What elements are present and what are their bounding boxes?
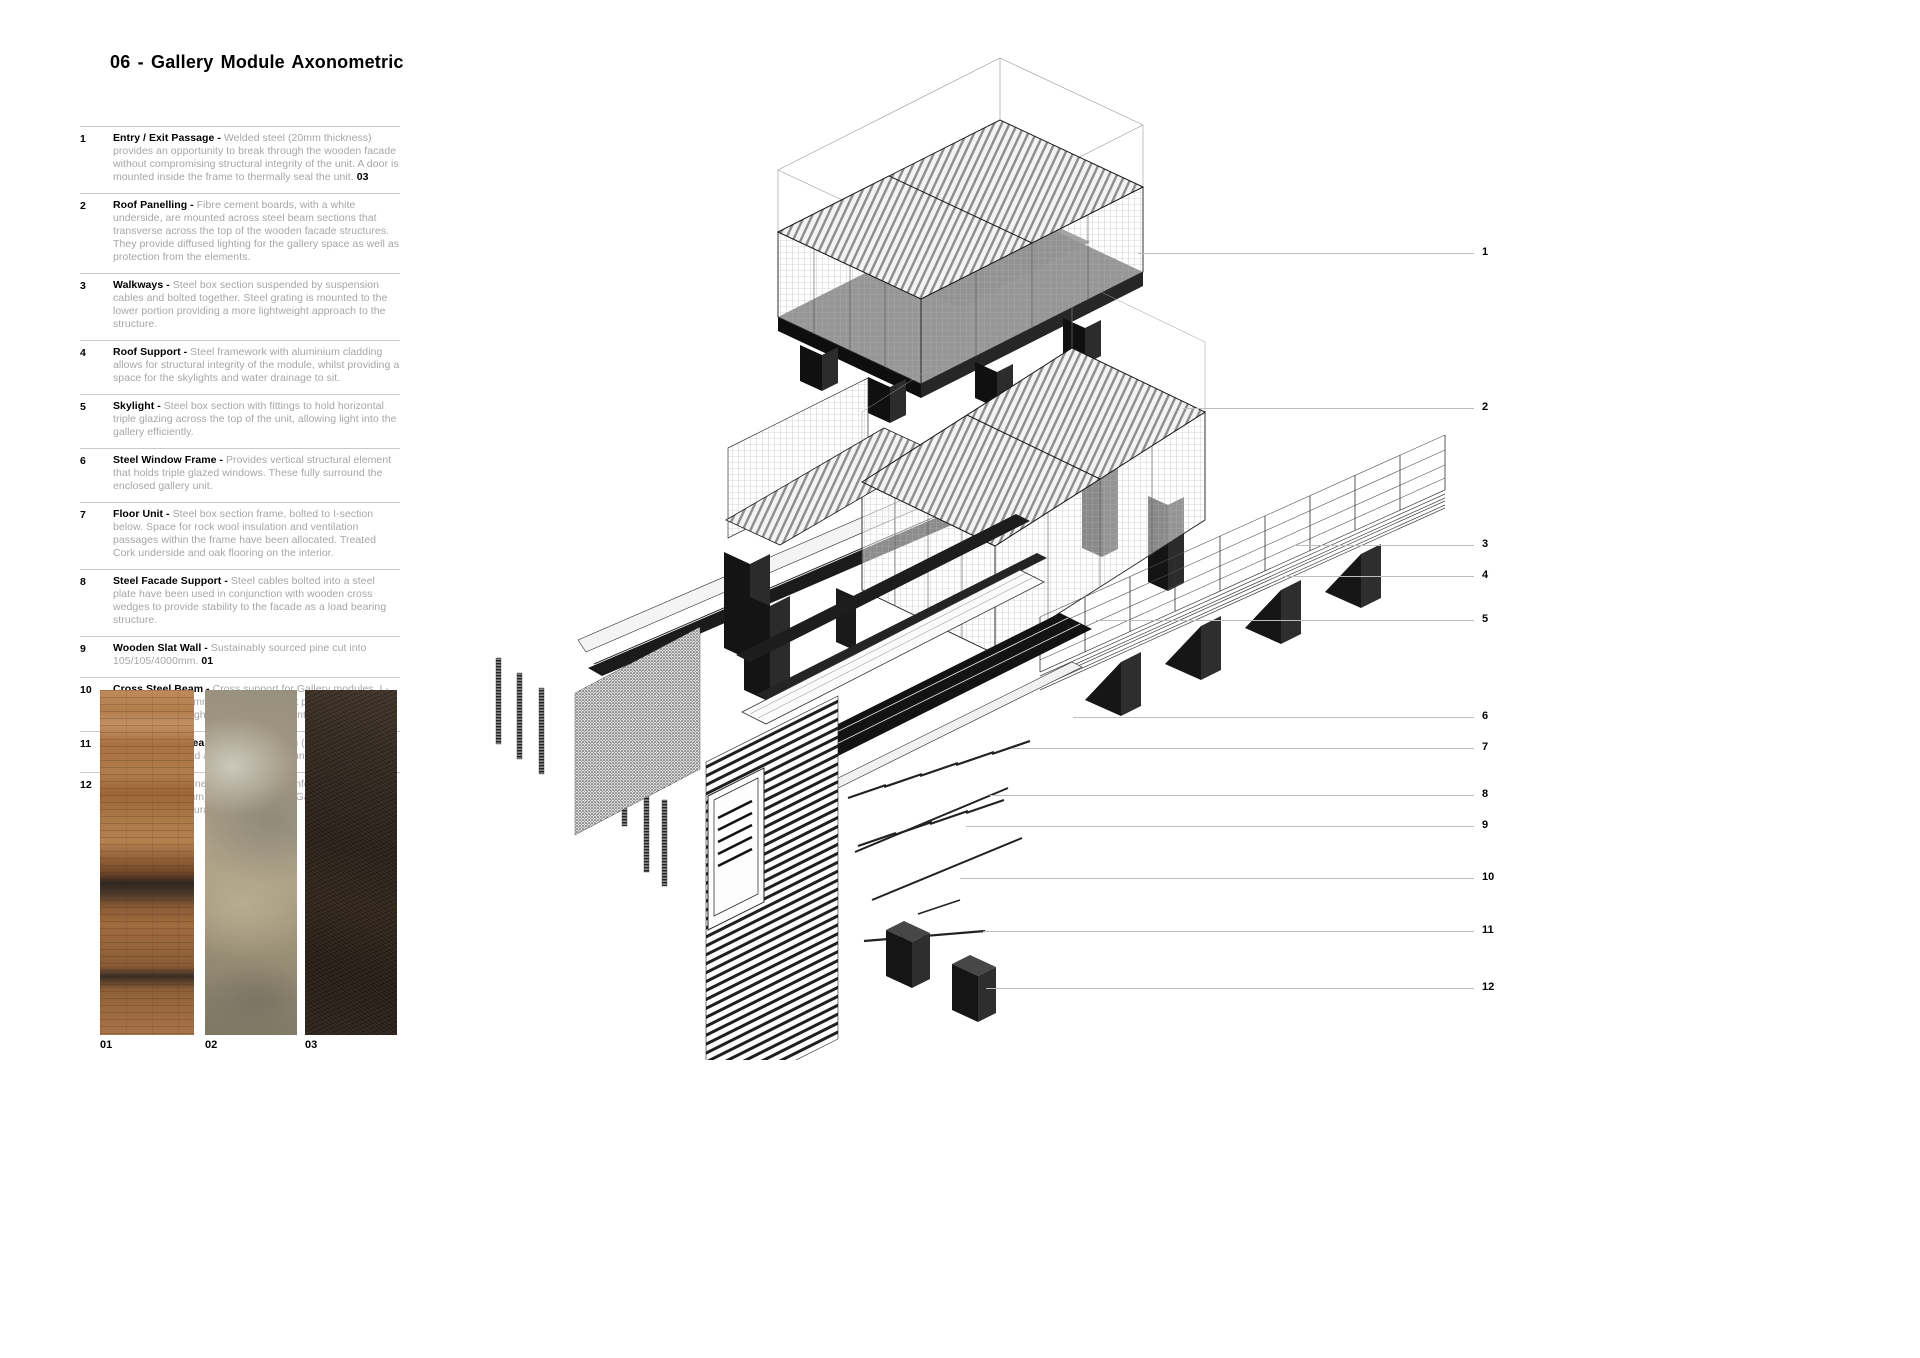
legend-text: Floor Unit - Steel box section frame, bo… — [113, 508, 400, 560]
legend-text: Roof Panelling - Fibre cement boards, wi… — [113, 199, 400, 264]
legend-ref: 01 — [201, 655, 213, 667]
callout-number: 1 — [1482, 246, 1488, 258]
legend-title: Wooden Slat Wall - — [113, 642, 211, 654]
swatch-label-03: 03 — [305, 1039, 317, 1051]
axonometric-drawing — [450, 40, 1500, 1060]
leader-line — [986, 988, 1474, 989]
legend-text: Steel Facade Support - Steel cables bolt… — [113, 575, 400, 627]
legend-text: Steel Window Frame - Provides vertical s… — [113, 454, 400, 493]
leader-line — [1183, 408, 1474, 409]
callout-number: 8 — [1482, 788, 1488, 800]
legend-number: 3 — [80, 280, 86, 292]
legend-title: Floor Unit - — [113, 508, 173, 520]
legend-text: Entry / Exit Passage - Welded steel (20m… — [113, 132, 400, 184]
legend-number: 6 — [80, 455, 86, 467]
legend-number: 5 — [80, 401, 86, 413]
legend-item-5: 5 Skylight - Steel box section with fitt… — [80, 394, 400, 448]
legend-ref: 03 — [357, 171, 369, 183]
leader-line — [983, 931, 1474, 932]
leader-line — [1293, 545, 1474, 546]
callout-number: 5 — [1482, 613, 1488, 625]
callout-number: 7 — [1482, 741, 1488, 753]
legend-number: 4 — [80, 347, 86, 359]
axon-stone-blocks — [886, 921, 996, 1022]
leader-line — [990, 795, 1474, 796]
legend-text: Skylight - Steel box section with fittin… — [113, 400, 400, 439]
legend-title: Entry / Exit Passage - — [113, 132, 224, 144]
legend-number: 8 — [80, 576, 86, 588]
callout-number: 10 — [1482, 871, 1494, 883]
axon-door-frame — [708, 768, 764, 930]
legend-item-9: 9 Wooden Slat Wall - Sustainably sourced… — [80, 636, 400, 677]
legend-text: Walkways - Steel box section suspended b… — [113, 279, 400, 331]
axon-cross-beams — [848, 741, 1030, 941]
leader-line — [1073, 717, 1474, 718]
legend-title: Steel Window Frame - — [113, 454, 226, 466]
legend-item-1: 1 Entry / Exit Passage - Welded steel (2… — [80, 126, 400, 193]
legend-item-4: 4 Roof Support - Steel framework with al… — [80, 340, 400, 394]
callout-number: 9 — [1482, 819, 1488, 831]
legend-number: 9 — [80, 643, 86, 655]
callout-number: 2 — [1482, 401, 1488, 413]
callout-number: 6 — [1482, 710, 1488, 722]
legend-title: Roof Panelling - — [113, 199, 197, 211]
leader-line — [1013, 748, 1474, 749]
callout-number: 11 — [1482, 924, 1494, 936]
axon-slat-wall — [706, 696, 838, 1060]
legend-number: 2 — [80, 200, 86, 212]
legend-number: 12 — [80, 779, 92, 791]
page-title: 06 - Gallery Module Axonometric — [110, 52, 404, 73]
legend-title: Walkways - — [113, 279, 173, 291]
legend-item-8: 8 Steel Facade Support - Steel cables bo… — [80, 569, 400, 636]
legend-item-6: 6 Steel Window Frame - Provides vertical… — [80, 448, 400, 502]
leader-line — [966, 826, 1474, 827]
leader-line — [960, 878, 1474, 879]
legend-number: 10 — [80, 684, 92, 696]
leader-line — [1096, 620, 1474, 621]
legend-number: 1 — [80, 133, 86, 145]
legend-item-2: 2 Roof Panelling - Fibre cement boards, … — [80, 193, 400, 273]
material-swatch-steel — [305, 690, 397, 1035]
legend-text: Wooden Slat Wall - Sustainably sourced p… — [113, 642, 400, 668]
callout-number: 3 — [1482, 538, 1488, 550]
legend-text: Roof Support - Steel framework with alum… — [113, 346, 400, 385]
legend-title: Roof Support - — [113, 346, 190, 358]
axon-walkway-wedges — [1085, 544, 1381, 716]
swatch-label-01: 01 — [100, 1039, 112, 1051]
material-swatch-stone — [205, 690, 297, 1035]
swatch-label-02: 02 — [205, 1039, 217, 1051]
legend-number: 11 — [80, 738, 91, 750]
callout-number: 12 — [1482, 981, 1494, 993]
leader-line — [1283, 576, 1474, 577]
legend-number: 7 — [80, 509, 86, 521]
leader-line — [1138, 253, 1474, 254]
sheet: 06 - Gallery Module Axonometric 1 Entry … — [0, 0, 1920, 1358]
legend-title: Steel Facade Support - — [113, 575, 231, 587]
legend-title: Skylight - — [113, 400, 164, 412]
legend-item-7: 7 Floor Unit - Steel box section frame, … — [80, 502, 400, 569]
callout-number: 4 — [1482, 569, 1488, 581]
legend-item-3: 3 Walkways - Steel box section suspended… — [80, 273, 400, 340]
material-swatch-wood — [100, 690, 194, 1035]
